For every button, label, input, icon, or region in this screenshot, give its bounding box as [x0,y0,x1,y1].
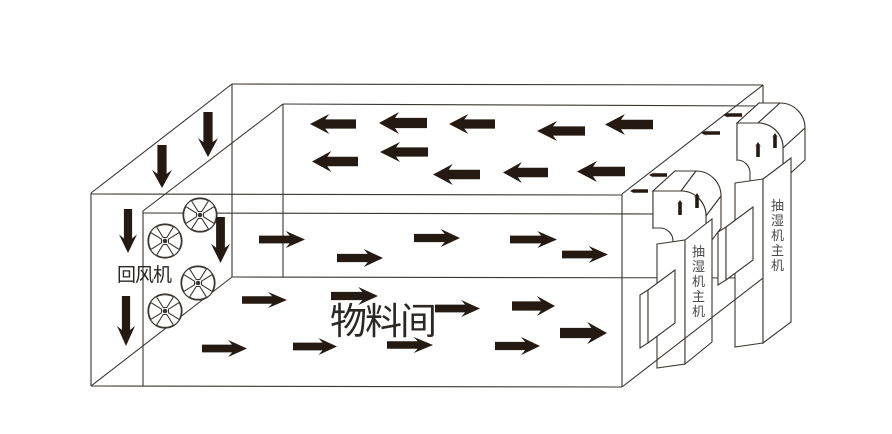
dehumidifier-unit-1: 抽湿机主机 [630,171,721,368]
unit-label-char: 主 [771,243,784,258]
unit-label-char: 机 [692,274,705,289]
duct-outflow-arrow [723,111,742,119]
room-edge [91,194,622,195]
room-edge [232,84,763,85]
unit-label-char: 湿 [692,259,705,274]
plenum-left-arrow [503,162,548,183]
plenum-left-arrow [310,114,356,134]
down-arrow [152,145,172,188]
mid-level-right-arrow [259,231,305,248]
plenum-left-arrow [577,161,625,182]
bottom-level-right-arrow [512,296,555,316]
airflow-diagram: 回风机物料间抽湿机主机抽湿机主机 [0,0,892,434]
room-edge [143,213,660,214]
unit-label-char: 抽 [771,198,784,213]
drying-room-airflow-svg: 回风机物料间抽湿机主机抽湿机主机 [0,0,892,434]
vent-side-strip [640,290,648,348]
plenum-left-arrow [379,112,427,134]
unit-label-char: 机 [771,258,784,273]
bottom-level-right-arrow [560,322,607,344]
return-fan-icons [148,198,217,328]
plenum-left-arrow [449,114,495,134]
bottom-level-right-arrow [495,337,540,355]
plenum-left-arrow [537,121,585,141]
mid-level-right-arrow [414,229,460,247]
bottom-level-right-arrow [435,300,480,317]
duct-outflow-arrow [649,171,667,179]
unit-label-char: 抽 [692,244,705,259]
plenum-left-arrow [433,164,480,185]
bottom-level-right-arrow [202,340,247,357]
unit-label-char: 机 [771,228,784,243]
down-arrow [198,112,218,157]
material-room-label: 物料间 [330,302,435,343]
plenum-left-arrow [312,151,358,172]
unit-label-char: 机 [692,304,705,319]
mid-level-right-arrow [337,249,383,267]
fan-icon [181,266,215,300]
fan-icon [148,224,182,258]
unit-label-char: 湿 [771,213,784,228]
plenum-left-arrow [380,142,428,162]
down-arrow [117,296,135,346]
fan-icon [183,198,217,232]
fan-icon [148,294,182,328]
down-arrow [119,209,137,253]
unit-label-char: 主 [692,289,705,304]
mid-level-right-arrow [510,231,557,248]
duct-outflow-arrow [630,187,648,195]
return-fan-label: 回风机 [117,264,172,286]
mid-level-right-arrow [562,246,608,263]
room-edge [283,104,760,106]
room-edge [91,386,622,387]
vent-side-strip [718,227,726,285]
plenum-left-arrow [605,114,653,135]
bottom-level-right-arrow [242,292,287,308]
